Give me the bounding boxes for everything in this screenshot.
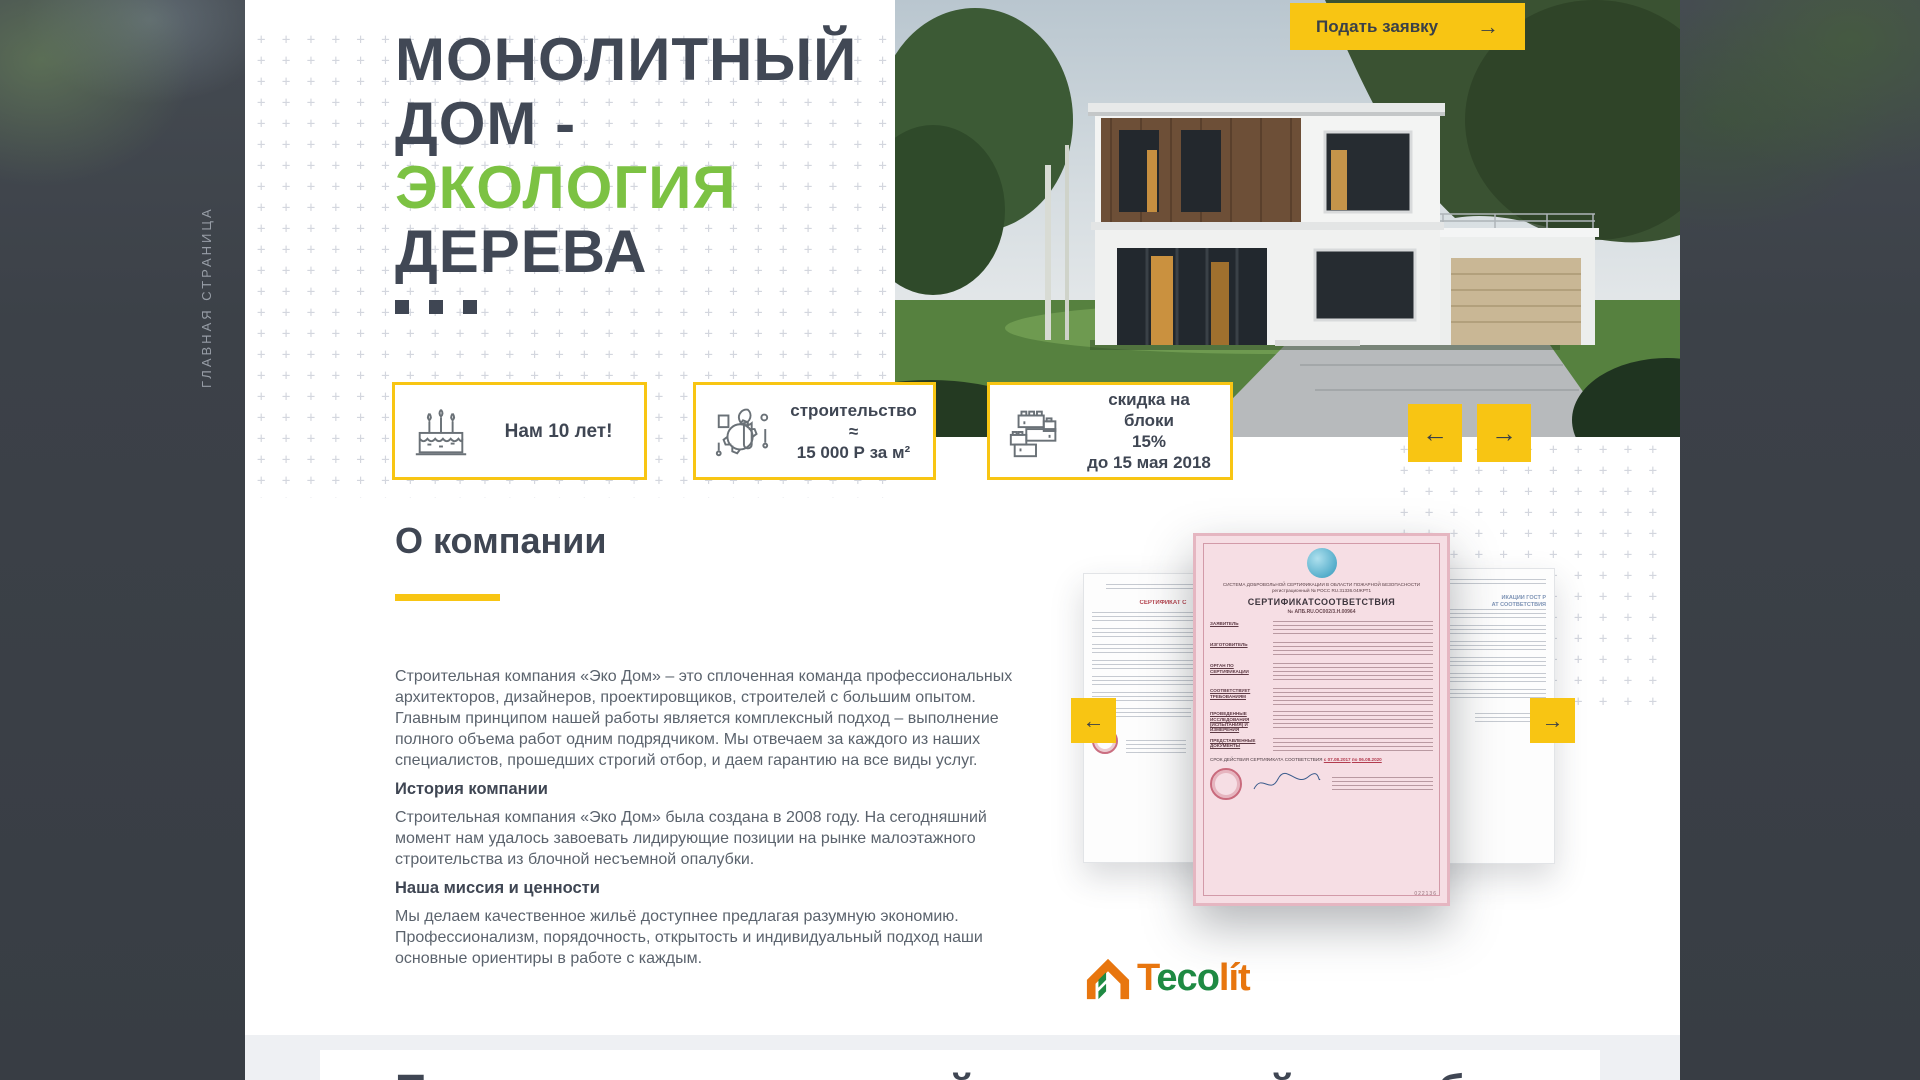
- arrow-left-icon: ←: [1422, 418, 1448, 449]
- arrow-right-icon: →: [1491, 418, 1517, 449]
- about-subheading-1: История компании: [395, 779, 1027, 800]
- apply-button-label: Подать заявку: [1316, 17, 1438, 37]
- validity-label: СРОК ДЕЙСТВИЯ СЕРТИФИКАТА СООТВЕТСТВИЯ: [1210, 757, 1323, 762]
- certificate-serial: 022136: [1414, 891, 1437, 897]
- certificate-number: № АПБ.RU.ОС002/3.Н.00964: [1210, 609, 1433, 615]
- cert-field-label: ПРЕДСТАВЛЕННЫЕ ДОКУМЕНТЫ: [1210, 738, 1268, 752]
- cert-field-label: ПРОВЕДЕННЫЕ ИССЛЕДОВАНИЯ (ИСПЫТАНИЯ) И И…: [1210, 711, 1268, 733]
- cert-field-label: ЗАЯВИТЕЛЬ: [1210, 621, 1268, 637]
- logo-part: lít: [1219, 957, 1250, 999]
- main-page-sheet: + + + + + + + + + + + + + + + + + + + + …: [245, 0, 1680, 1080]
- cert-field-label: ОРГАН ПО СЕРТИФИКАЦИИ: [1210, 663, 1268, 683]
- certificate-reg-line: регистрационный № РОСС RU.31336.04ЖРТ1: [1210, 588, 1433, 594]
- hero-house-photo: [895, 0, 1680, 437]
- page-breadcrumb-vertical: ГЛАВНАЯ СТРАНИЦА: [199, 218, 214, 388]
- logo-leaf-o: o: [1197, 957, 1219, 999]
- certificates-prev-button[interactable]: ←: [1071, 698, 1116, 743]
- house-logo-icon: [1085, 955, 1131, 1001]
- certificate-title: СЕРТИФИКАТСООТВЕТСТВИЯ: [1210, 597, 1433, 607]
- hero-title: МОНОЛИТНЫЙ ДОМ - ЭКОЛОГИЯ ДЕРЕВА: [395, 28, 857, 284]
- blocks-icon: [990, 400, 1082, 462]
- about-paragraph-2: Строительная компания «Эко Дом» была соз…: [395, 807, 1027, 870]
- tools-icon: [696, 400, 788, 462]
- badge-discount: скидка на блоки 15% до 15 мая 2018: [987, 382, 1233, 480]
- badge-discount-line1: скидка на блоки: [1082, 389, 1216, 431]
- hero-title-line4: ДЕРЕВА: [395, 220, 857, 284]
- cert-field-label: ИЗГОТОВИТЕЛЬ: [1210, 642, 1268, 658]
- validity-to: по 06.08.2020: [1352, 757, 1382, 762]
- badge-price-line2: 15 000 Р за м²: [788, 442, 919, 463]
- signature-scribble: [1252, 771, 1322, 797]
- badge-anniversary: Нам 10 лет!: [392, 382, 647, 480]
- about-subheading-2: Наша миссия и ценности: [395, 878, 1027, 899]
- cert-field-label: СООТВЕТСТВУЕТ ТРЕБОВАНИЯМ: [1210, 688, 1268, 706]
- hero-title-line1: МОНОЛИТНЫЙ: [395, 28, 857, 92]
- certificate-validity: СРОК ДЕЙСТВИЯ СЕРТИФИКАТА СООТВЕТСТВИЯ с…: [1210, 757, 1433, 762]
- dot-square: [429, 300, 443, 314]
- title-dots-ornament: [395, 300, 477, 314]
- badge-discount-text: скидка на блоки 15% до 15 мая 2018: [1082, 389, 1230, 473]
- about-text-block: Строительная компания «Эко Дом» – это сп…: [395, 666, 1027, 977]
- certificate-center[interactable]: СИСТЕМА ДОБРОВОЛЬНОЙ СЕРТИФИКАЦИИ В ОБЛА…: [1193, 533, 1450, 906]
- blue-seal-icon: [1307, 548, 1337, 578]
- badge-discount-line2: 15%: [1082, 431, 1216, 452]
- tecolit-logo: Tecolít: [1085, 955, 1250, 1001]
- about-paragraph-1: Строительная компания «Эко Дом» – это сп…: [395, 666, 1027, 771]
- tecolit-logo-text: Tecolít: [1137, 957, 1250, 1000]
- cake-icon: [395, 400, 487, 462]
- certificate-system-line: СИСТЕМА ДОБРОВОЛЬНОЙ СЕРТИФИКАЦИИ В ОБЛА…: [1210, 582, 1433, 588]
- badge-price: строительство ≈ 15 000 Р за м²: [693, 382, 936, 480]
- badge-price-text: строительство ≈ 15 000 Р за м²: [788, 400, 933, 463]
- arrow-right-icon: →: [1477, 14, 1499, 40]
- logo-part: T: [1137, 957, 1156, 999]
- hero-title-line3: ЭКОЛОГИЯ: [395, 156, 857, 220]
- red-stamp: [1210, 768, 1242, 800]
- house-illustration: [895, 0, 1680, 437]
- next-section-heading: Преимущества несъемной строительной опал…: [395, 1066, 1514, 1080]
- dot-square: [395, 300, 409, 314]
- about-heading: О компании: [395, 520, 606, 562]
- certificate-signature-area: [1210, 768, 1433, 800]
- hero-prev-button[interactable]: ←: [1408, 404, 1462, 462]
- badge-discount-line3: до 15 мая 2018: [1082, 452, 1216, 473]
- logo-part: ec: [1156, 957, 1196, 999]
- arrow-right-icon: →: [1542, 708, 1564, 734]
- certificates-next-button[interactable]: →: [1530, 698, 1575, 743]
- about-paragraph-3: Мы делаем качественное жильё доступнее п…: [395, 906, 1027, 969]
- badge-anniversary-text: Нам 10 лет!: [487, 421, 644, 442]
- validity-from: с 07.08.2017: [1324, 757, 1351, 762]
- dot-square: [463, 300, 477, 314]
- apply-button[interactable]: Подать заявку →: [1290, 3, 1525, 50]
- hero-next-button[interactable]: →: [1477, 404, 1531, 462]
- badge-price-line1: строительство ≈: [788, 400, 919, 442]
- heading-underline: [395, 594, 500, 601]
- arrow-left-icon: ←: [1083, 708, 1105, 734]
- hero-title-line2: ДОМ -: [395, 92, 857, 156]
